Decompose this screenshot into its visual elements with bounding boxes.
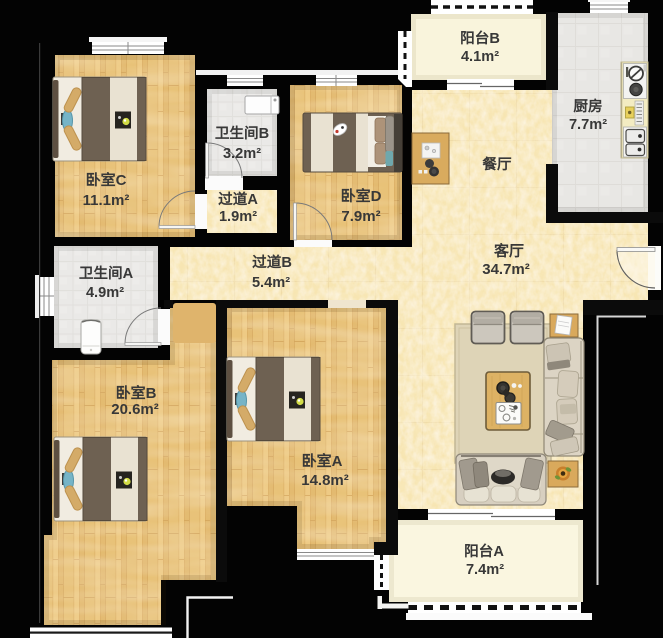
svg-text:卧室C: 卧室C: [86, 169, 127, 190]
svg-text:卧室A: 卧室A: [302, 450, 343, 471]
svg-text:5.4m²: 5.4m²: [252, 271, 290, 292]
svg-text:14.8m²: 14.8m²: [301, 469, 349, 490]
svg-text:餐厅: 餐厅: [481, 153, 512, 174]
svg-text:7.4m²: 7.4m²: [466, 558, 504, 579]
svg-text:34.7m²: 34.7m²: [482, 258, 530, 279]
svg-text:4.9m²: 4.9m²: [86, 281, 124, 302]
svg-text:4.1m²: 4.1m²: [461, 45, 499, 66]
svg-text:卫生间A: 卫生间A: [79, 262, 134, 283]
svg-text:过道B: 过道B: [252, 251, 292, 272]
svg-text:7.9m²: 7.9m²: [341, 205, 380, 226]
svg-text:3.2m²: 3.2m²: [223, 142, 261, 163]
svg-text:7.7m²: 7.7m²: [569, 113, 607, 134]
svg-text:卧室D: 卧室D: [341, 185, 382, 206]
svg-text:20.6m²: 20.6m²: [111, 398, 159, 419]
svg-text:1.9m²: 1.9m²: [219, 205, 257, 226]
svg-text:11.1m²: 11.1m²: [83, 189, 130, 210]
svg-text:卫生间B: 卫生间B: [215, 122, 269, 143]
